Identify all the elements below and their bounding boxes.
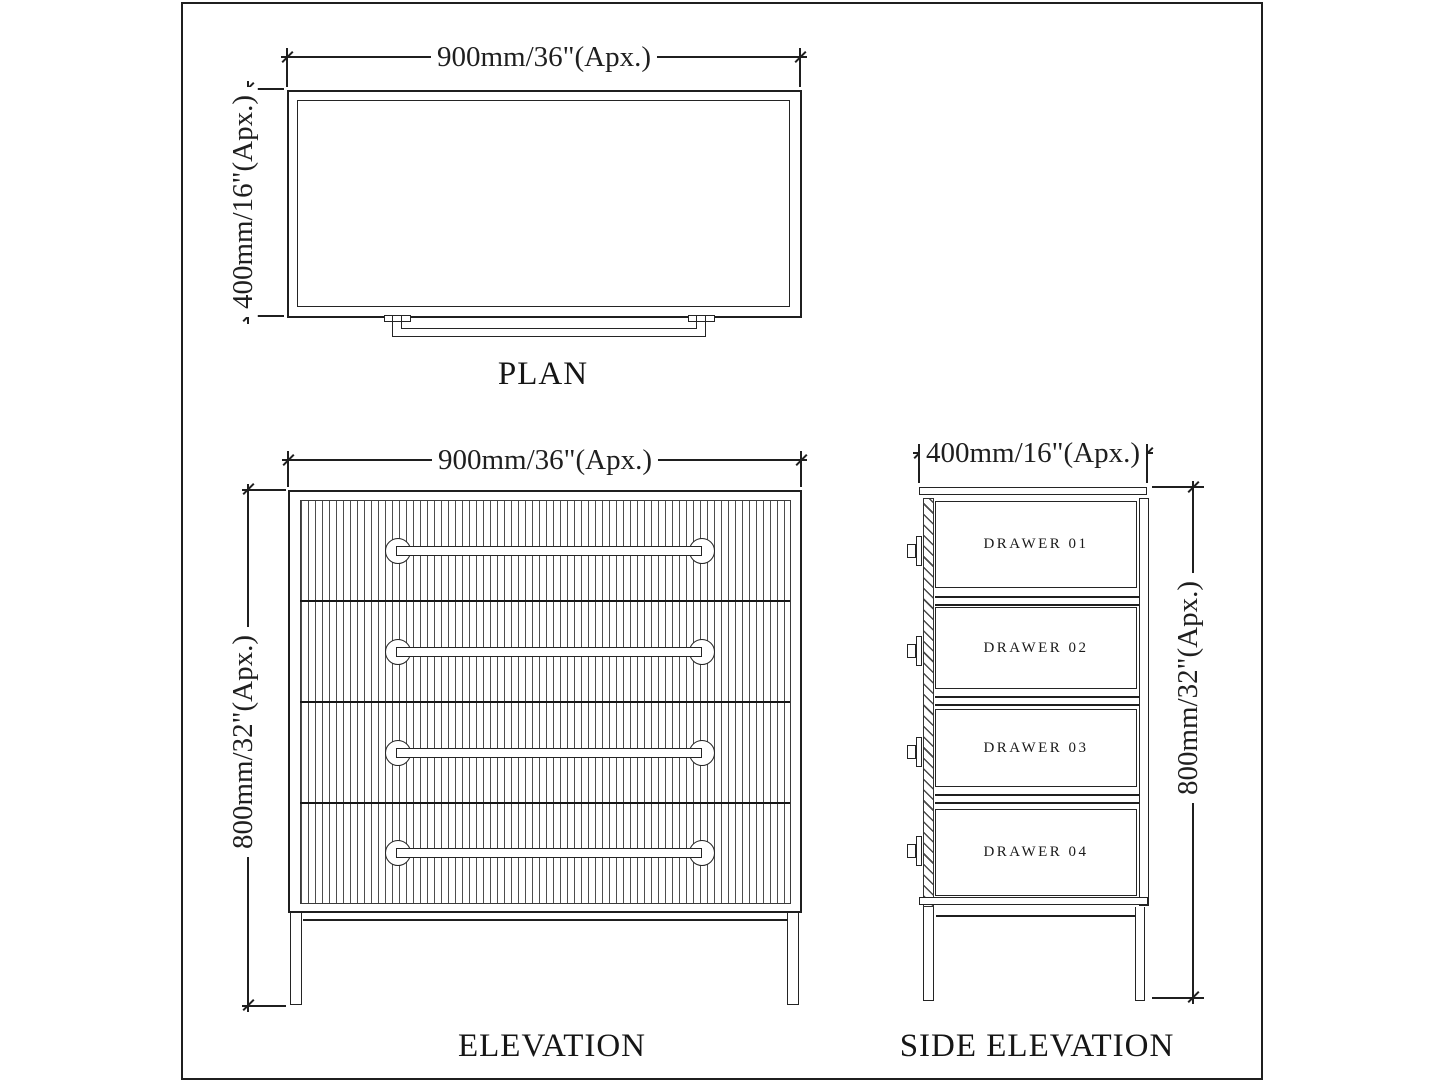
plan-depth-dimension-label: 400mm/16"(Apx.): [228, 87, 258, 317]
extension-line: [287, 451, 289, 487]
drawer-handle-bar: [396, 848, 702, 858]
handle-plan-inner: [401, 316, 697, 329]
extension-line: [1152, 997, 1204, 999]
drawer-divider: [300, 701, 790, 703]
drawer-label: DRAWER 03: [983, 740, 1088, 757]
side-back-stile: [1139, 498, 1149, 906]
leg-rail-line: [303, 919, 788, 921]
drawer-label: DRAWER 01: [983, 536, 1088, 553]
leg-rail-line: [936, 915, 1135, 917]
drawer-rail-line: [935, 802, 1139, 804]
handle-side-knob: [907, 844, 916, 858]
drawer-rail-line: [935, 696, 1139, 698]
handle-side-knob: [907, 644, 916, 658]
drawer-handle-bar: [396, 647, 702, 657]
drawer-divider: [300, 600, 790, 602]
handle-side-knob: [907, 544, 916, 558]
drawer-rail-line: [935, 704, 1139, 706]
drawer-rail-line: [935, 596, 1139, 598]
drawer-box: DRAWER 04: [935, 809, 1137, 896]
elevation-view-title: ELEVATION: [458, 1028, 646, 1065]
drawing-sheet: 900mm/36"(Apx.) 400mm/16"(Apx.) PLAN 900…: [0, 0, 1445, 1084]
side-front-stile-hatched: [923, 498, 934, 907]
drawer-handle-bar: [396, 546, 702, 556]
front-left-leg: [290, 913, 302, 1005]
handle-side-plate: [916, 636, 922, 666]
drawer-handle-bar: [396, 748, 702, 758]
handle-side-plate: [916, 536, 922, 566]
side-bottom-slab: [919, 897, 1148, 905]
side-elevation-view-title: SIDE ELEVATION: [900, 1028, 1175, 1065]
drawer-box: DRAWER 01: [935, 501, 1137, 588]
elevation-height-dimension-label: 800mm/32"(Apx.): [228, 627, 258, 857]
plan-view-title: PLAN: [498, 356, 588, 393]
handle-side-knob: [907, 745, 916, 759]
drawer-divider: [300, 802, 790, 804]
extension-line: [800, 451, 802, 487]
extension-line: [1152, 486, 1204, 488]
handle-side-plate: [916, 737, 922, 767]
drawer-label: DRAWER 04: [983, 844, 1088, 861]
elevation-width-dimension-label: 900mm/36"(Apx.): [432, 445, 658, 475]
side-depth-dimension-label: 400mm/16"(Apx.): [920, 438, 1146, 468]
plan-width-dimension-label: 900mm/36"(Apx.): [431, 42, 657, 72]
side-top-slab: [919, 487, 1147, 495]
drawer-rail-line: [935, 794, 1139, 796]
drawer-box: DRAWER 02: [935, 607, 1137, 689]
drawer-box: DRAWER 03: [935, 709, 1137, 787]
drawer-rail-line: [935, 604, 1139, 606]
side-front-leg: [923, 907, 934, 1001]
side-height-dimension-label: 800mm/32"(Apx.): [1173, 573, 1203, 803]
side-back-leg: [1135, 907, 1145, 1001]
plan-top-inner-outline: [297, 100, 790, 307]
drawer-label: DRAWER 02: [983, 640, 1088, 657]
front-right-leg: [787, 913, 799, 1005]
handle-side-plate: [916, 836, 922, 866]
